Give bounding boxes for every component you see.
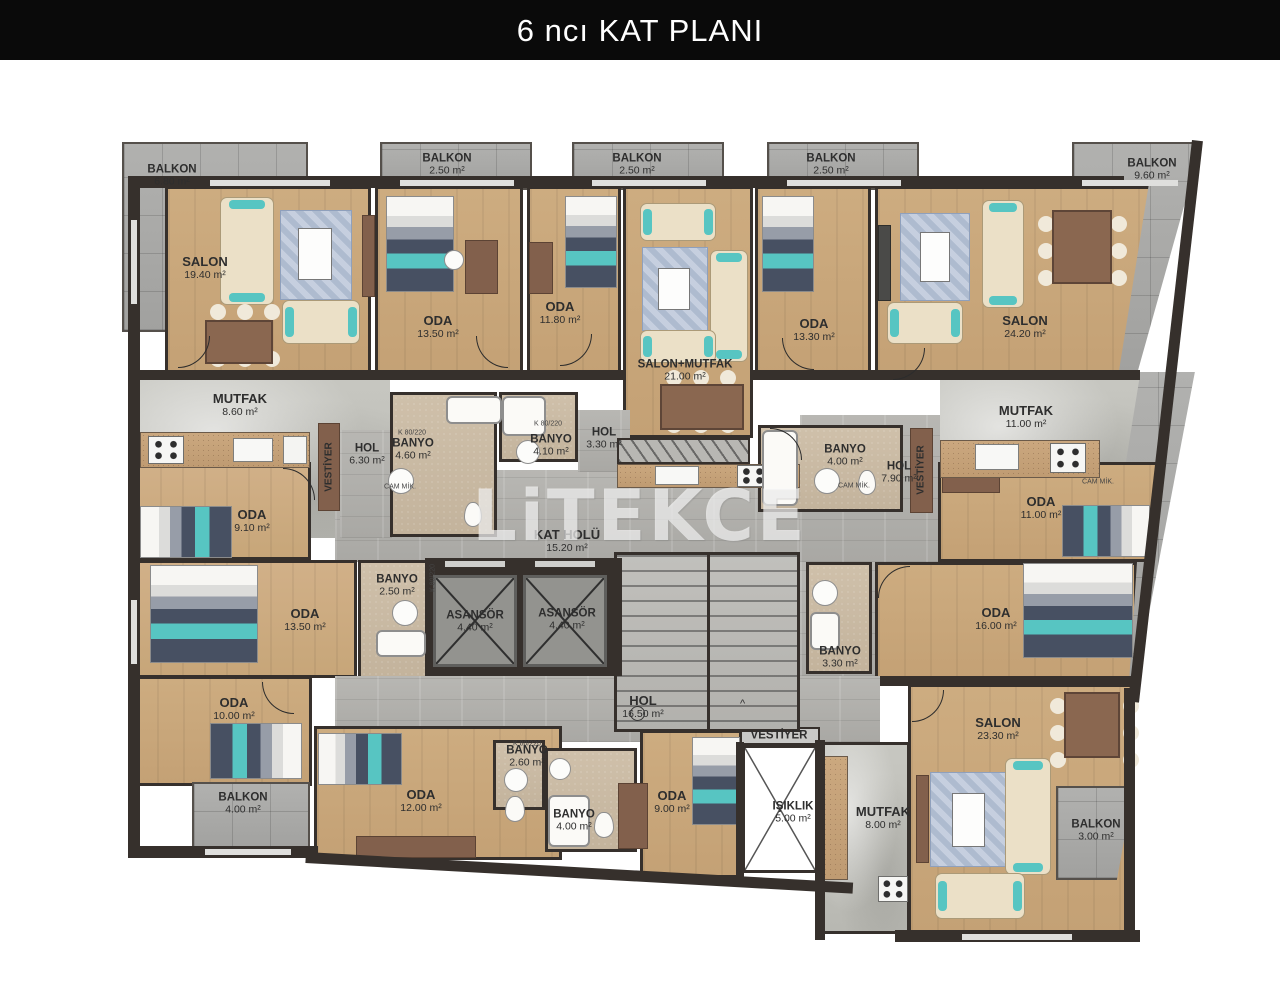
dining-table (1052, 210, 1112, 284)
bed (692, 737, 740, 825)
label-oda-r1: ODA11.00 m² (1021, 495, 1062, 521)
desk (465, 240, 498, 294)
bed (318, 733, 402, 785)
wall (816, 742, 824, 877)
elevator-door-2 (535, 561, 595, 567)
window (787, 180, 901, 186)
window (400, 180, 514, 186)
toilet (594, 812, 614, 838)
stair-divider (707, 555, 710, 729)
coffee-table (920, 232, 950, 282)
label-hol-l: HOL6.30 m² (349, 443, 385, 468)
kitchen-counter (822, 756, 848, 880)
watermark: LiTEKCE (472, 475, 807, 557)
bathtub (502, 396, 546, 436)
label-asansor-2: ASANSÖR4.40 m² (538, 608, 596, 633)
bathtub (376, 630, 426, 657)
label-oda-t2: ODA11.80 m² (540, 300, 581, 326)
bed (1062, 505, 1150, 557)
label-mutfak-tr: MUTFAK11.00 m² (999, 404, 1053, 430)
dining-chairs (210, 304, 226, 320)
stove (878, 876, 908, 902)
window (210, 180, 330, 186)
coffee-table (298, 228, 332, 280)
door-tag: K 80/220 (513, 741, 541, 748)
wardrobe (618, 783, 648, 849)
label-banyo-l1: BANYO4.60 m² (392, 438, 434, 463)
coffee-table (952, 793, 985, 847)
tv-unit (362, 215, 375, 297)
loveseat (282, 300, 360, 344)
door-tag: K 80/220 (430, 564, 437, 592)
label-balkon-tr: BALKON9.60 m² (1127, 158, 1176, 183)
label-oda-t3: ODA13.30 m² (793, 317, 834, 343)
label-oda-b1: ODA10.00 m² (213, 696, 254, 722)
loveseat (935, 873, 1025, 919)
label-salon-tr: SALON24.20 m² (1002, 314, 1048, 340)
floor-plan-page: 6 ncı KAT PLANI ^ (0, 0, 1280, 1001)
label-asansor-1: ASANSÖR4.40 m² (446, 610, 504, 635)
wall (736, 742, 744, 877)
sofa (982, 200, 1024, 308)
label-hol-b: HOL16.50 m² (622, 694, 663, 720)
glass-tag: CAM MİK. (1082, 479, 1114, 486)
label-balkon-t1: BALKON2.50 m² (422, 153, 471, 178)
coffee-table (658, 268, 690, 310)
toilet (505, 796, 525, 822)
label-oda-l2: ODA13.50 m² (284, 607, 325, 633)
dining-table (1064, 692, 1120, 758)
label-banyo-b1: BANYO2.60 m² (506, 745, 548, 770)
tv-unit (916, 775, 929, 863)
sofa (1005, 758, 1051, 875)
label-oda-r2: ODA16.00 m² (975, 606, 1016, 632)
sofa (220, 197, 274, 305)
label-salon-tl: SALON19.40 m² (182, 255, 228, 281)
bed (565, 196, 617, 288)
window (131, 220, 137, 304)
label-mutfak-tl: MUTFAK8.60 m² (213, 392, 267, 418)
bathtub (446, 396, 502, 424)
label-oda-b2: ODA12.00 m² (400, 788, 441, 814)
elevator-door-1 (445, 561, 505, 567)
desk (529, 242, 553, 294)
tv-unit (878, 225, 891, 301)
appliance (283, 436, 307, 464)
bathtub (810, 612, 840, 650)
sink (812, 580, 838, 606)
label-vestiyer-l: VESTİYER (323, 442, 334, 491)
label-banyo-r1: BANYO4.00 m² (824, 444, 866, 469)
label-balkon-t2: BALKON2.50 m² (612, 153, 661, 178)
label-balkon-t3: BALKON2.50 m² (806, 153, 855, 178)
bed (210, 723, 302, 779)
double-bed (150, 565, 258, 663)
wall (134, 370, 625, 380)
glass-tag: CAM MİK. (838, 483, 870, 490)
wall (750, 370, 1140, 380)
page-title: 6 ncı KAT PLANI (517, 13, 763, 49)
label-hol-c: HOL3.30 m² (586, 427, 622, 452)
label-oda-l1: ODA9.10 m² (234, 508, 270, 534)
sink (549, 758, 571, 780)
door-tag: K 80/220 (398, 430, 426, 437)
bed (762, 196, 814, 292)
wall (880, 676, 1140, 686)
label-isiklik: IŞIKLIK5.00 m² (773, 801, 814, 826)
label-salon-br: SALON23.30 m² (975, 716, 1021, 742)
kitchen-sink (975, 444, 1019, 470)
stove (148, 436, 184, 464)
window (131, 600, 137, 664)
kitchen-sink (233, 438, 273, 462)
door-tag: K 80/220 (534, 421, 562, 428)
stove (1050, 443, 1086, 473)
label-oda-t1: ODA13.50 m² (417, 314, 458, 340)
stair-up-arrow-icon: ^ (740, 698, 745, 710)
stair-upper-flight (617, 438, 750, 464)
label-banyo-b2: BANYO4.00 m² (553, 809, 595, 834)
label-balkon-br: BALKON3.00 m² (1071, 819, 1120, 844)
bed (140, 506, 232, 558)
desk-chair (444, 250, 464, 270)
sofa (640, 203, 716, 241)
wall (1124, 688, 1135, 940)
label-banyo-l2: BANYO2.50 m² (376, 574, 418, 599)
wardrobe (356, 836, 476, 858)
window (592, 180, 706, 186)
label-salon-mutfak: SALON+MUTFAK21.00 m² (638, 359, 733, 384)
sink (392, 600, 418, 626)
window (205, 849, 291, 855)
dining-table (205, 320, 273, 364)
window (962, 934, 1072, 940)
label-balkon-bl: BALKON4.00 m² (218, 792, 267, 817)
dining-table (660, 384, 744, 430)
double-bed (1023, 563, 1133, 658)
loveseat (887, 302, 963, 344)
label-vestiyer-b: VESTİYER (751, 730, 808, 743)
sink (504, 768, 528, 792)
label-hol-r: HOL7.90 m² (881, 461, 917, 486)
label-balkon-tl: BALKON6.80 m² (147, 164, 196, 189)
label-banyo-c1: BANYO4.10 m² (530, 434, 572, 459)
label-banyo-r2: BANYO3.30 m² (819, 646, 861, 671)
label-mutfak-b: MUTFAK8.00 m² (856, 805, 910, 831)
label-oda-b3: ODA9.00 m² (654, 789, 690, 815)
label-vestiyer-r: VESTİYER (915, 445, 926, 494)
glass-tag: CAM MİK. (384, 484, 416, 491)
sink (814, 468, 840, 494)
bed (386, 196, 454, 292)
